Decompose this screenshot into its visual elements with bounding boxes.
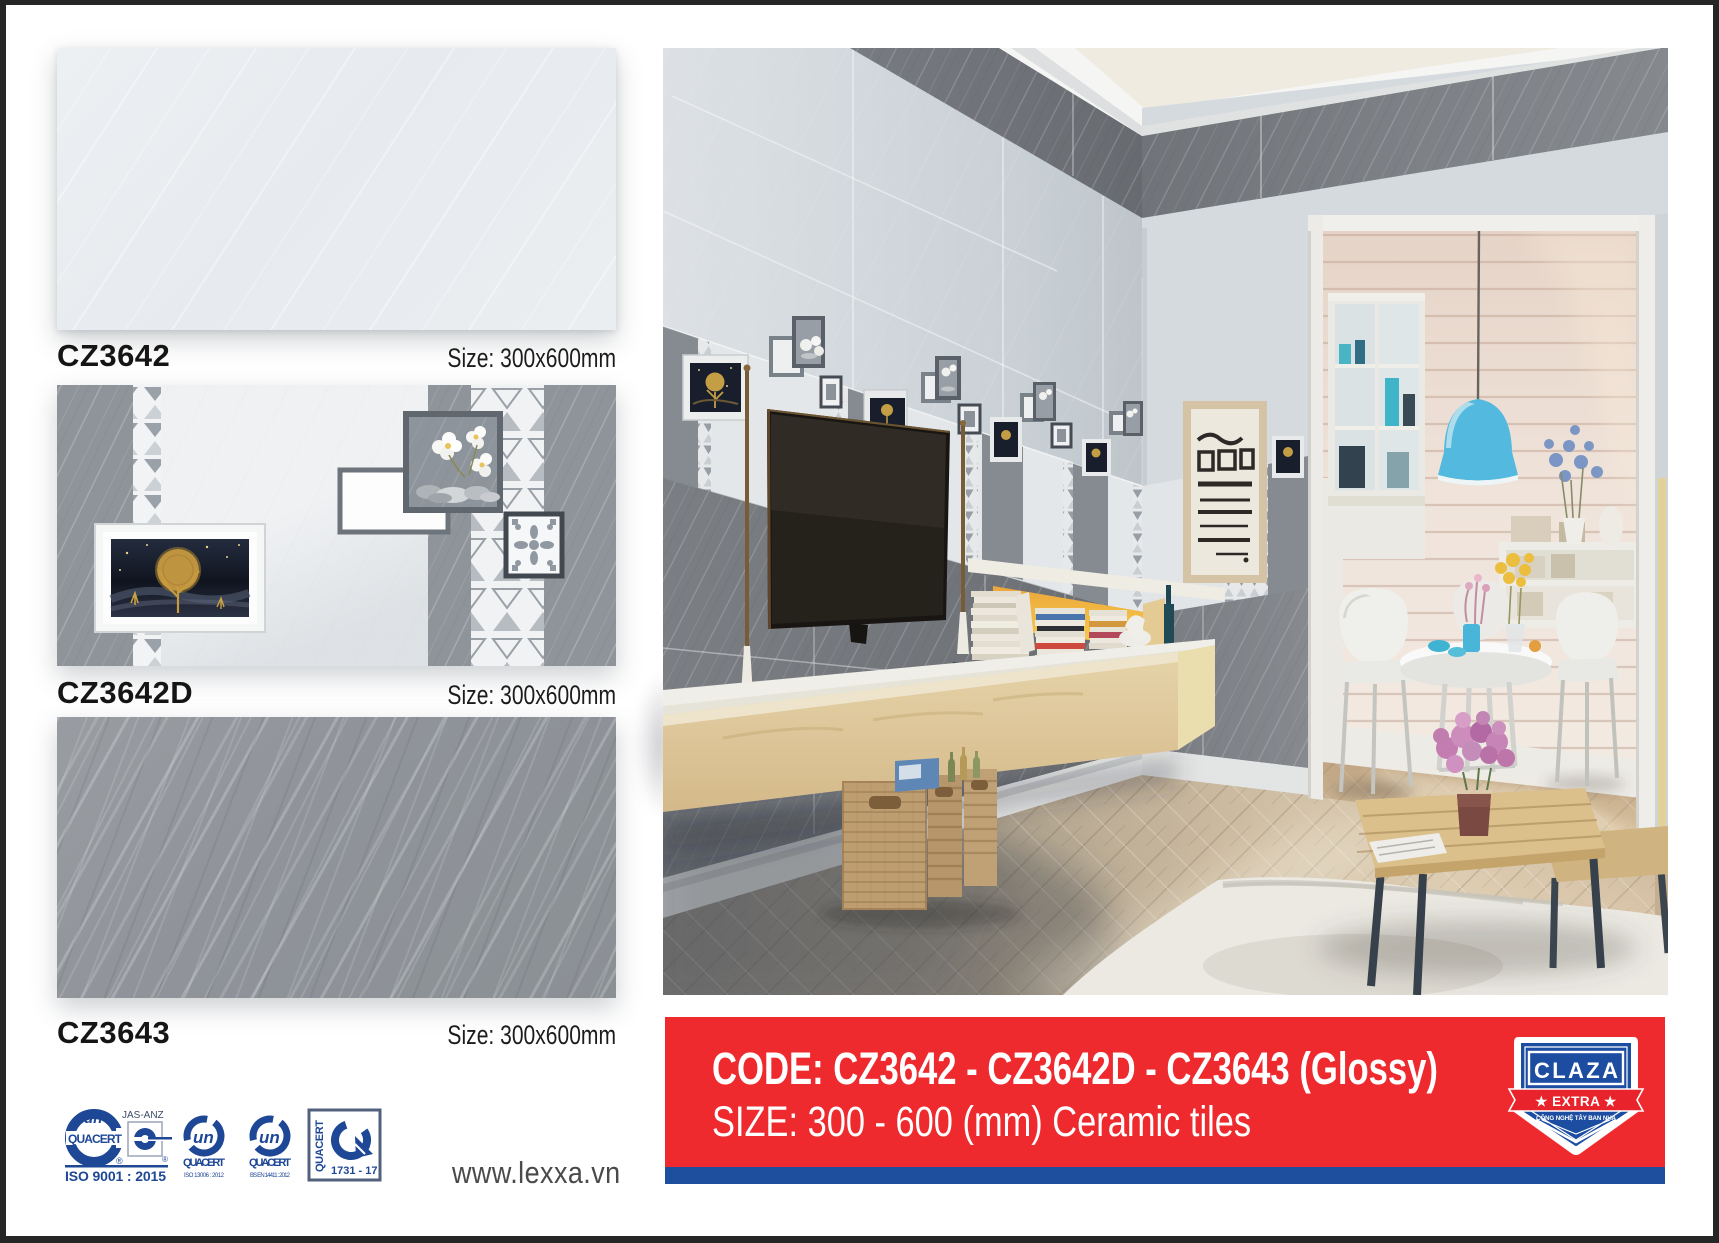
svg-text:®: ® — [116, 1156, 123, 1166]
svg-text:ISO 9001 : 2015: ISO 9001 : 2015 — [65, 1168, 166, 1184]
svg-text:un: un — [84, 1110, 102, 1127]
svg-text:CÔNG NGHỆ TÂY BAN NHA: CÔNG NGHỆ TÂY BAN NHA — [1536, 1114, 1617, 1122]
svg-text:★ EXTRA ★: ★ EXTRA ★ — [1535, 1094, 1617, 1109]
svg-text:®: ® — [162, 1155, 168, 1164]
svg-text:QUACERT: QUACERT — [249, 1157, 291, 1169]
svg-text:CLAZA: CLAZA — [1534, 1058, 1618, 1083]
svg-text:BS EN 14411 : 2012: BS EN 14411 : 2012 — [250, 1173, 291, 1179]
svg-text:QUACERT: QUACERT — [68, 1132, 123, 1146]
svg-text:un: un — [193, 1128, 214, 1147]
svg-text:QUACERT: QUACERT — [183, 1157, 225, 1169]
svg-text:ISO 13006 : 2012: ISO 13006 : 2012 — [184, 1173, 225, 1179]
svg-text:QUACERT: QUACERT — [314, 1120, 326, 1172]
svg-text:un: un — [259, 1128, 280, 1147]
svg-text:JAS-ANZ: JAS-ANZ — [122, 1110, 164, 1121]
svg-text:1731 - 17: 1731 - 17 — [331, 1165, 377, 1177]
